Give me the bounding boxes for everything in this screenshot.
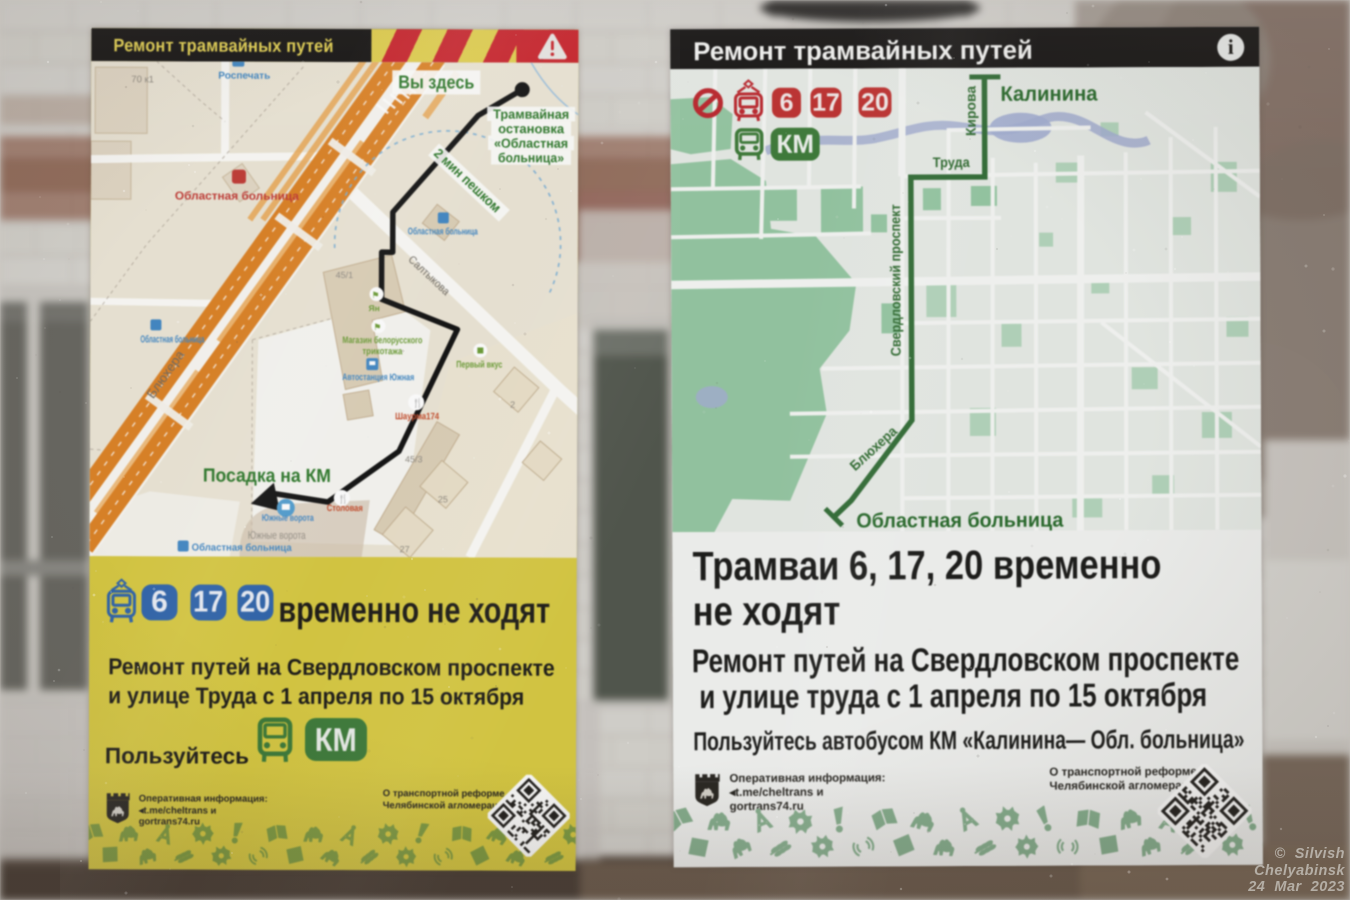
- svg-text:6: 6: [779, 89, 793, 117]
- svg-text:20: 20: [861, 88, 889, 116]
- svg-text:больница»: больница»: [498, 150, 564, 165]
- svg-text:Магазин белорусского: Магазин белорусского: [342, 335, 422, 346]
- svg-text:Трамвайная: Трамвайная: [493, 107, 569, 122]
- svg-text:остановка: остановка: [498, 121, 565, 136]
- svg-text:Калинина: Калинина: [1000, 82, 1097, 105]
- svg-text:Областная больница: Областная больница: [192, 542, 292, 554]
- svg-text:Областная больница: Областная больница: [140, 333, 204, 345]
- svg-text:КМ: КМ: [776, 129, 814, 159]
- svg-text:Столовая: Столовая: [327, 503, 363, 514]
- svg-text:⚑: ⚑: [373, 322, 381, 332]
- svg-text:⚑: ⚑: [372, 290, 380, 300]
- svg-text:«Областная: «Областная: [494, 136, 568, 151]
- svg-text:Южные ворота: Южные ворота: [248, 530, 307, 542]
- svg-text:Роспечать: Роспечать: [218, 71, 270, 82]
- svg-text:Автостанция Южная: Автостанция Южная: [342, 372, 414, 383]
- svg-text:Вы здесь: Вы здесь: [398, 71, 474, 92]
- svg-text:🍴: 🍴: [412, 397, 423, 409]
- svg-text:Свердловский проспект: Свердловский проспект: [887, 204, 904, 356]
- svg-text:45/1: 45/1: [336, 270, 354, 280]
- svg-text:Посадка на КМ: Посадка на КМ: [203, 466, 331, 487]
- svg-text:70 к1: 70 к1: [131, 74, 154, 85]
- svg-text:2: 2: [510, 400, 515, 410]
- svg-text:Областная больница: Областная больница: [408, 226, 479, 237]
- svg-text:45/3: 45/3: [405, 454, 423, 464]
- svg-text:17: 17: [812, 89, 840, 117]
- svg-text:Кирова: Кирова: [962, 86, 978, 136]
- svg-text:Первый вкус: Первый вкус: [456, 359, 502, 370]
- svg-text:Ян: Ян: [368, 303, 379, 313]
- svg-text:трикотажа: трикотажа: [362, 346, 403, 357]
- svg-text:Областная больница: Областная больница: [175, 190, 300, 202]
- svg-text:25: 25: [438, 494, 448, 504]
- svg-text:Областная больница: Областная больница: [856, 509, 1064, 533]
- svg-text:Шаурма174: Шаурма174: [395, 411, 440, 422]
- svg-text:Труда: Труда: [933, 154, 970, 170]
- svg-text:27: 27: [400, 544, 410, 554]
- svg-text:Южные ворота: Южные ворота: [262, 513, 315, 524]
